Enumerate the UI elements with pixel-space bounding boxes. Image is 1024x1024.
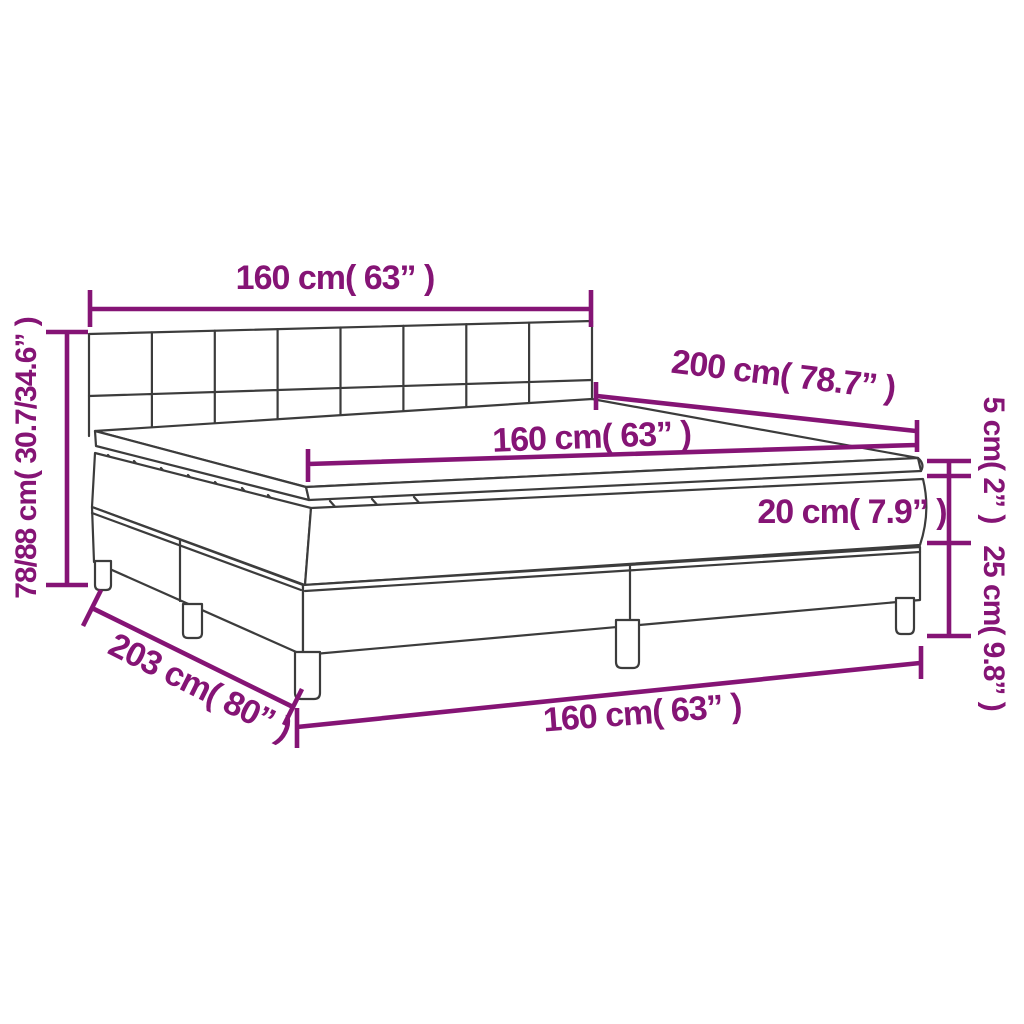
label-overall-height: 78/88 cm( 30.7/34.6” ) [10,317,43,599]
diagram-canvas: 160 cm( 63” ) 78/88 cm( 30.7/34.6” ) 200… [0,0,1024,1024]
leg-front-middle [616,620,639,668]
leg-rear-left [95,561,111,590]
dim-line-right-heights [927,461,971,636]
label-topper-thickness: 5 cm( 2” ) [977,397,1010,524]
dim-line-overall-height [46,332,88,585]
leg-front-right [896,598,914,634]
label-box-spring-height: 25 cm( 9.8” ) [977,545,1010,710]
leg-left-middle [183,604,202,638]
label-mattress-length: 200 cm( 78.7” ) [669,343,897,408]
label-mattress-width: 160 cm( 63” ) [492,414,692,460]
label-mattress-thickness: 20 cm( 7.9” ) [757,493,946,531]
label-headboard-width: 160 cm( 63” ) [236,259,435,297]
label-overall-length: 203 cm( 80” ) [103,626,298,749]
bed-dimension-diagram: 160 cm( 63” ) 78/88 cm( 30.7/34.6” ) 200… [0,0,1024,1024]
label-base-width: 160 cm( 63” ) [542,687,743,740]
